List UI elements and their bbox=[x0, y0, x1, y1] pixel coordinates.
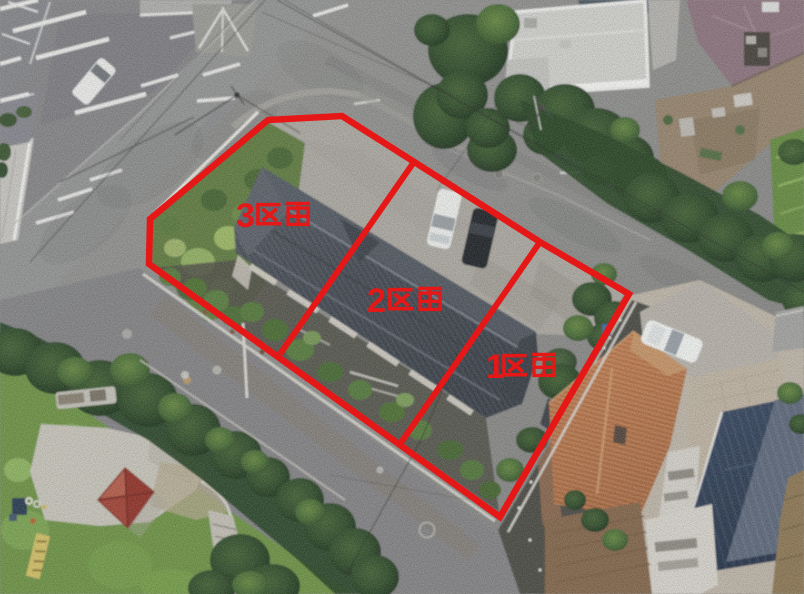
svg-text:1: 1 bbox=[486, 348, 505, 386]
svg-text:3: 3 bbox=[236, 197, 255, 235]
svg-text:2: 2 bbox=[367, 282, 386, 320]
